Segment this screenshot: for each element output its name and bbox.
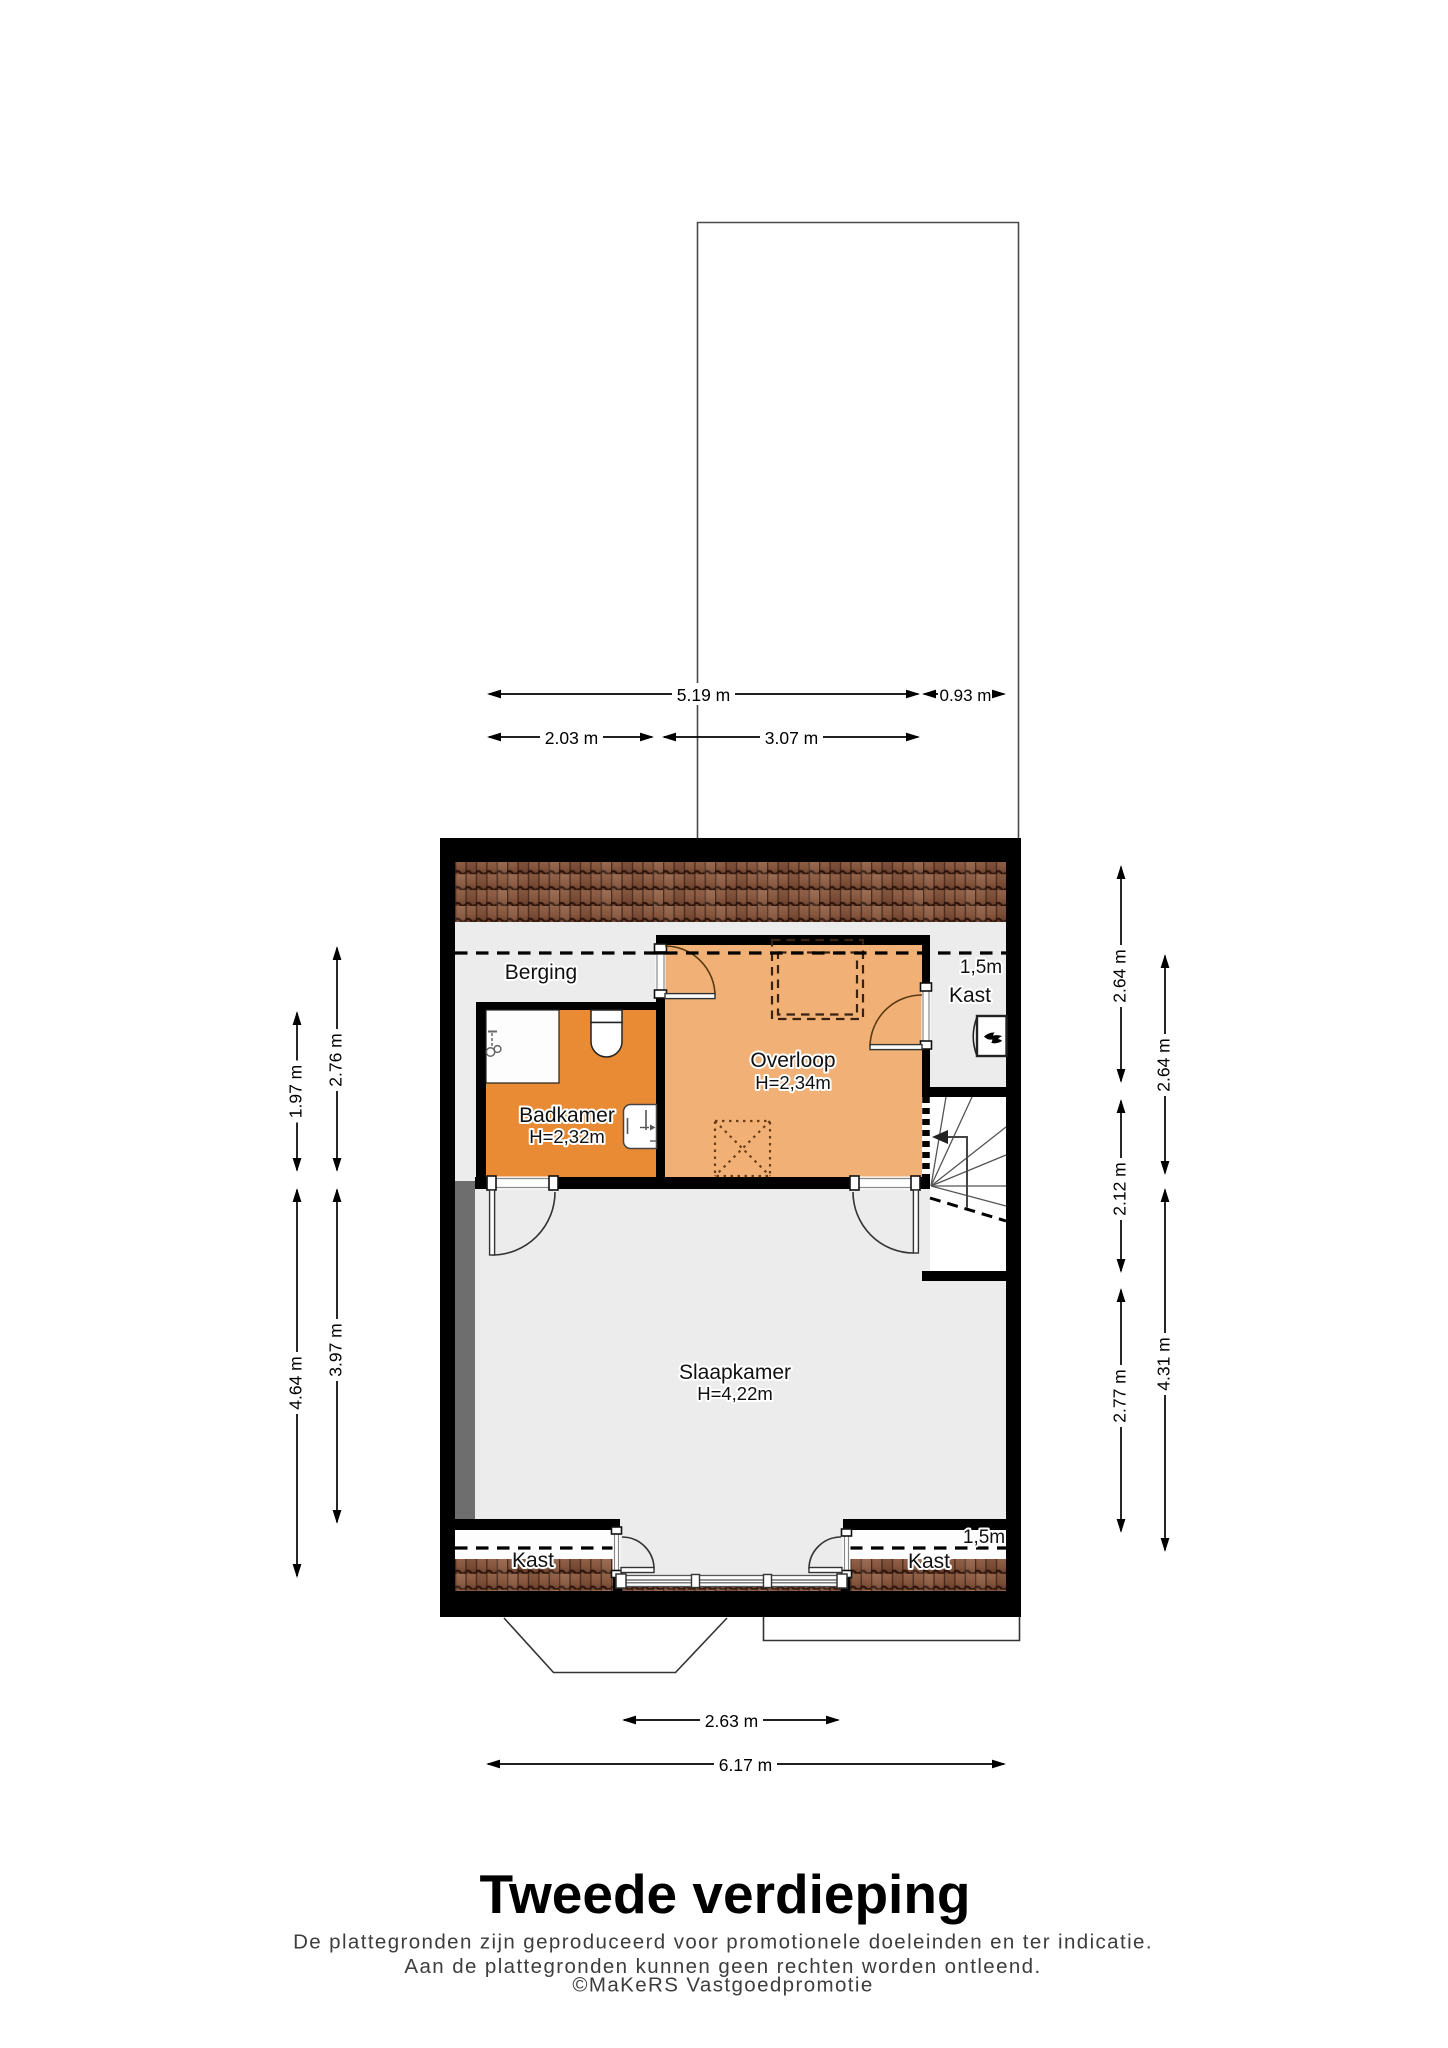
svg-text:Overloop: Overloop — [750, 1049, 835, 1072]
svg-text:2.12 m: 2.12 m — [1110, 1162, 1130, 1216]
svg-text:3.97 m: 3.97 m — [326, 1323, 346, 1377]
svg-text:2.03 m: 2.03 m — [545, 728, 599, 748]
svg-text:4.64 m: 4.64 m — [286, 1356, 306, 1410]
svg-text:Tweede verdieping: Tweede verdieping — [479, 1863, 970, 1925]
svg-text:De plattegronden zijn geproduc: De plattegronden zijn geproduceerd voor … — [293, 1931, 1153, 1954]
svg-text:H=4,22m: H=4,22m — [697, 1383, 773, 1404]
svg-text:Kast: Kast — [512, 1549, 554, 1572]
svg-text:4.31 m: 4.31 m — [1154, 1337, 1174, 1391]
svg-text:H=2,34m: H=2,34m — [755, 1072, 831, 1093]
svg-text:1,5m: 1,5m — [960, 957, 1002, 978]
svg-text:1,5m: 1,5m — [963, 1527, 1005, 1548]
svg-text:H=2,32m: H=2,32m — [529, 1126, 605, 1147]
svg-text:2.63 m: 2.63 m — [705, 1711, 759, 1731]
svg-text:0.93 m: 0.93 m — [940, 686, 992, 705]
svg-text:6.17 m: 6.17 m — [719, 1755, 773, 1775]
svg-text:3.07 m: 3.07 m — [765, 728, 819, 748]
svg-text:Badkamer: Badkamer — [519, 1104, 615, 1127]
svg-text:Kast: Kast — [908, 1550, 950, 1573]
svg-text:Berging: Berging — [505, 961, 577, 984]
svg-text:2.64 m: 2.64 m — [1110, 949, 1130, 1003]
svg-text:2.76 m: 2.76 m — [326, 1033, 346, 1087]
svg-text:1.97 m: 1.97 m — [286, 1065, 306, 1119]
svg-text:2.64 m: 2.64 m — [1154, 1038, 1174, 1092]
svg-text:Kast: Kast — [949, 984, 991, 1007]
svg-text:5.19 m: 5.19 m — [677, 685, 731, 705]
svg-text:©MaKeRS Vastgoedpromotie: ©MaKeRS Vastgoedpromotie — [572, 1974, 873, 1997]
svg-text:Slaapkamer: Slaapkamer — [679, 1361, 791, 1384]
svg-text:2.77 m: 2.77 m — [1110, 1369, 1130, 1423]
